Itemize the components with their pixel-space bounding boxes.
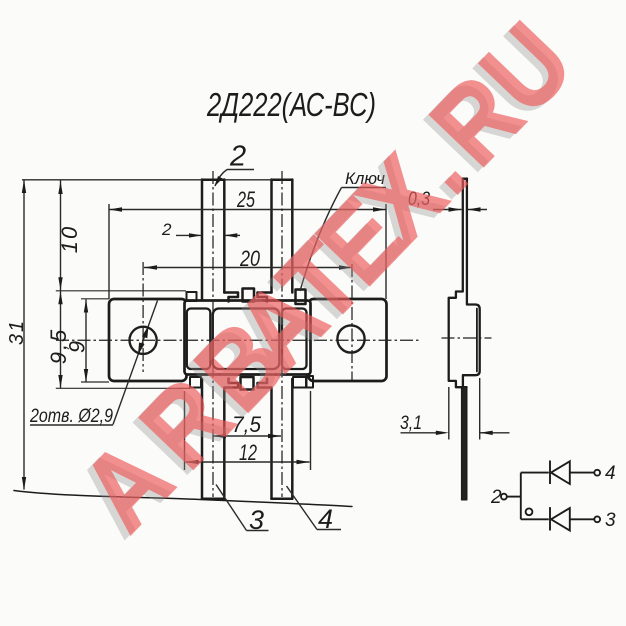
svg-text:4: 4 [605,463,616,484]
svg-text:25: 25 [236,187,255,212]
svg-text:2: 2 [229,141,246,173]
svg-text:4: 4 [318,504,333,534]
svg-text:2: 2 [161,220,172,239]
svg-text:10: 10 [57,225,82,253]
svg-text:3: 3 [605,510,616,531]
svg-text:31: 31 [6,319,28,345]
svg-text:3: 3 [249,505,264,535]
svg-text:2Д222(АС-ВС): 2Д222(АС-ВС) [206,86,376,123]
svg-text:9: 9 [65,339,90,353]
svg-text:3,1: 3,1 [400,413,422,434]
